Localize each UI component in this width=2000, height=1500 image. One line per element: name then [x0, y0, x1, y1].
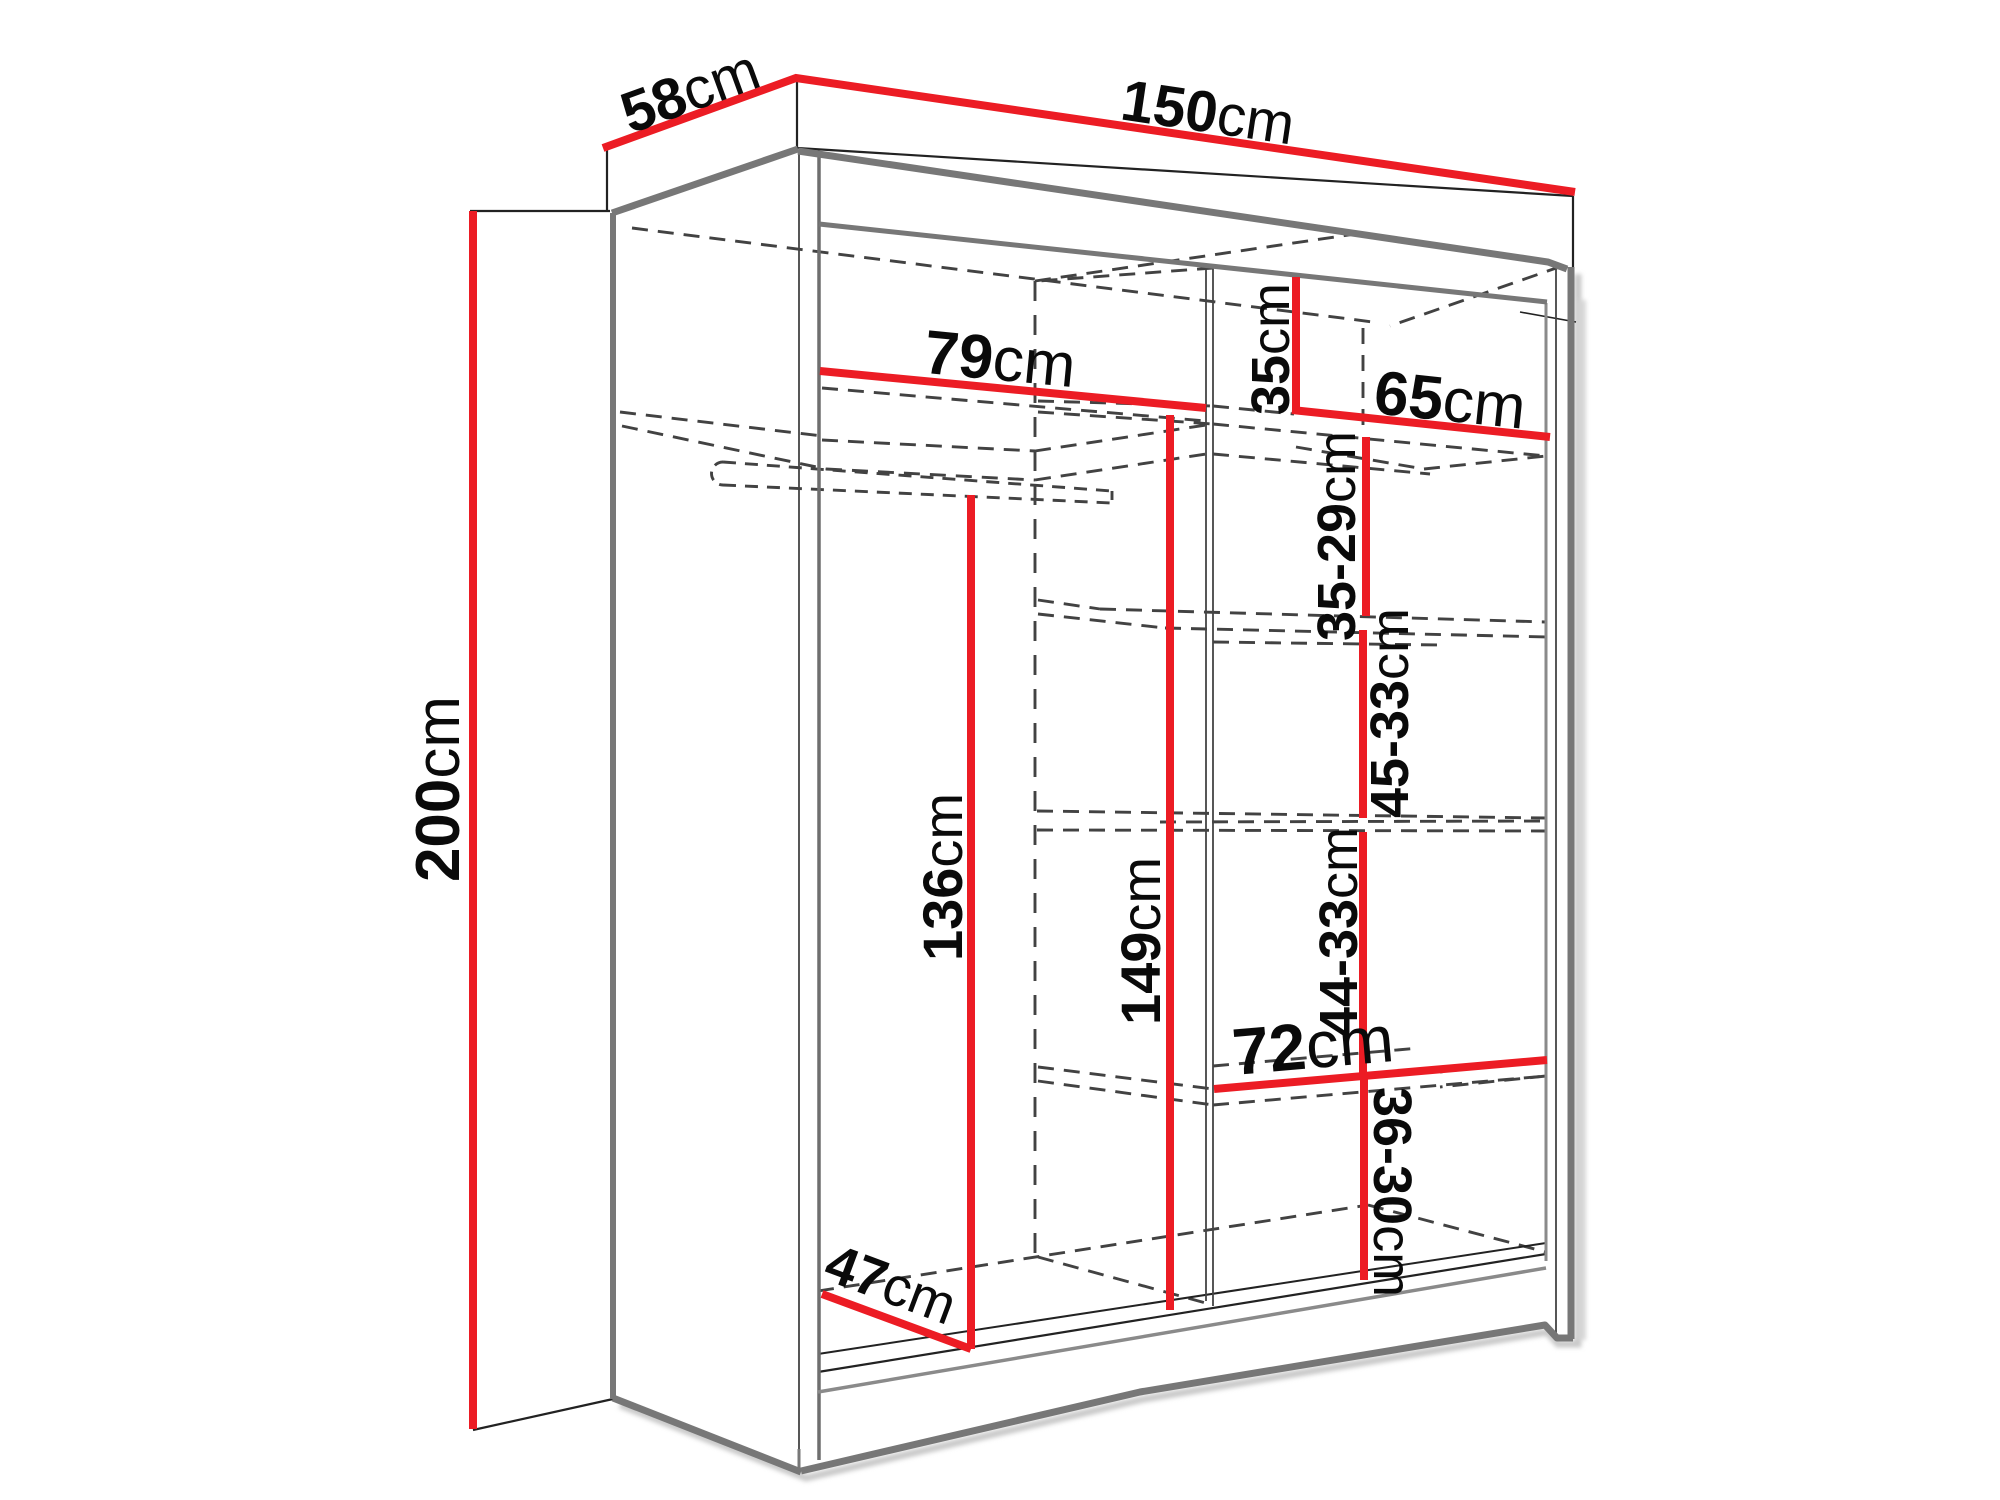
svg-text:35cm: 35cm	[1241, 283, 1301, 415]
svg-text:136cm: 136cm	[911, 793, 974, 961]
svg-text:72cm: 72cm	[1229, 1001, 1396, 1089]
svg-text:200cm: 200cm	[404, 696, 473, 882]
svg-text:79cm: 79cm	[921, 317, 1079, 400]
svg-text:45-33cm: 45-33cm	[1360, 608, 1420, 818]
svg-text:35-29cm: 35-29cm	[1307, 431, 1367, 641]
svg-text:149cm: 149cm	[1109, 857, 1172, 1025]
svg-text:36-30cm: 36-30cm	[1362, 1087, 1422, 1297]
